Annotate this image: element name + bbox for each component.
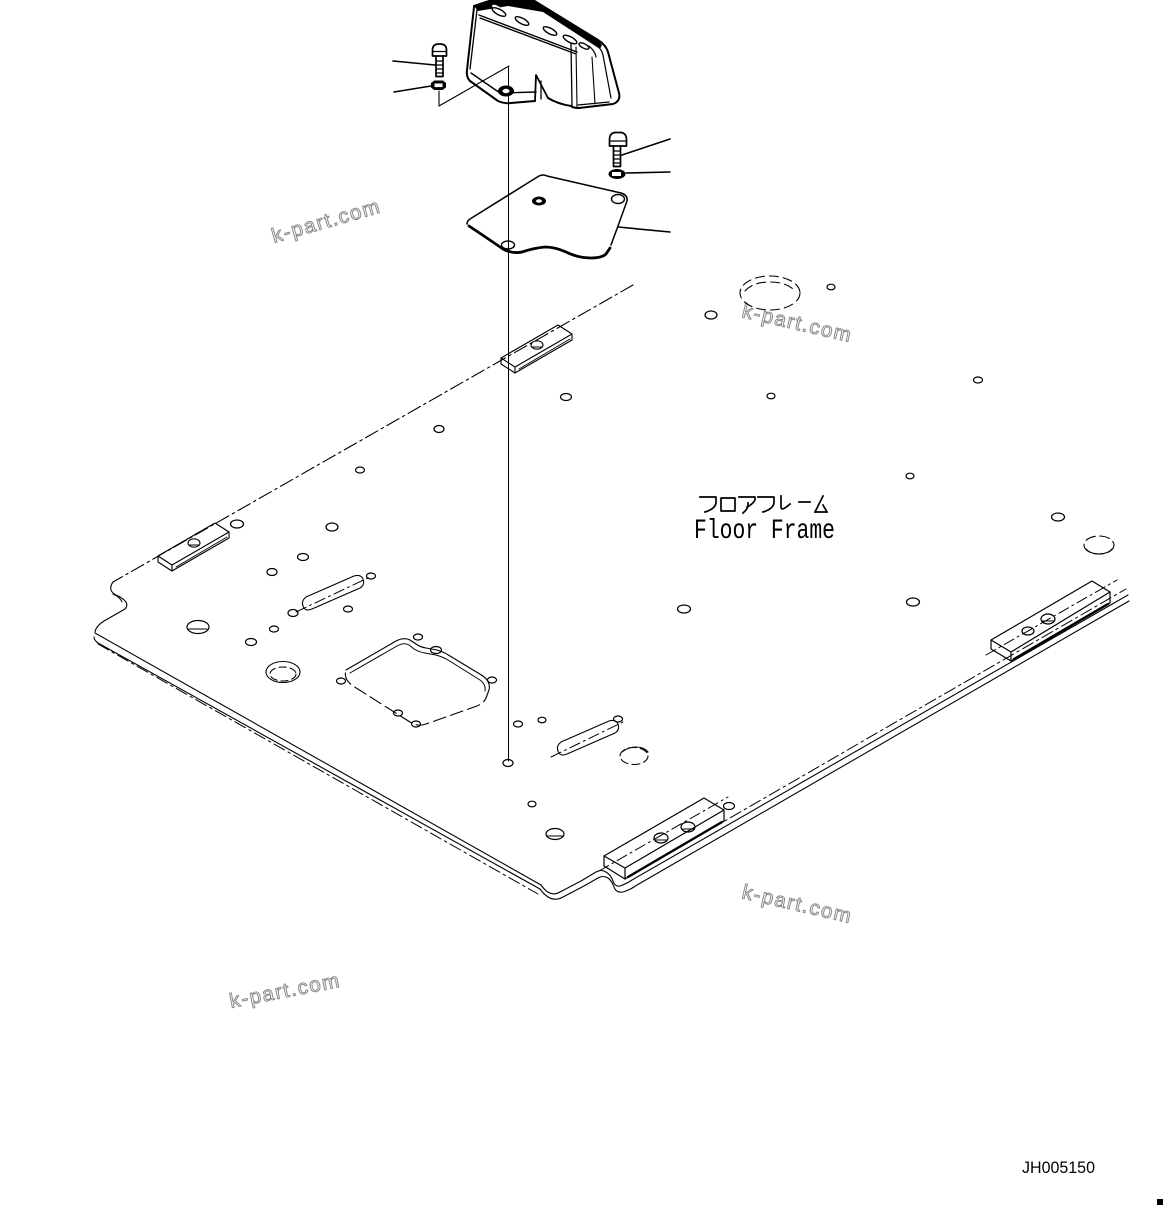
- svg-text:k-part.com: k-part.com: [269, 195, 382, 248]
- svg-text:JH005150: JH005150: [1022, 1158, 1095, 1177]
- svg-text:k-part.com: k-part.com: [740, 880, 853, 927]
- svg-text:k-part.com: k-part.com: [740, 299, 853, 346]
- svg-text:Floor Frame: Floor Frame: [694, 516, 835, 547]
- svg-text:k-part.com: k-part.com: [228, 969, 341, 1013]
